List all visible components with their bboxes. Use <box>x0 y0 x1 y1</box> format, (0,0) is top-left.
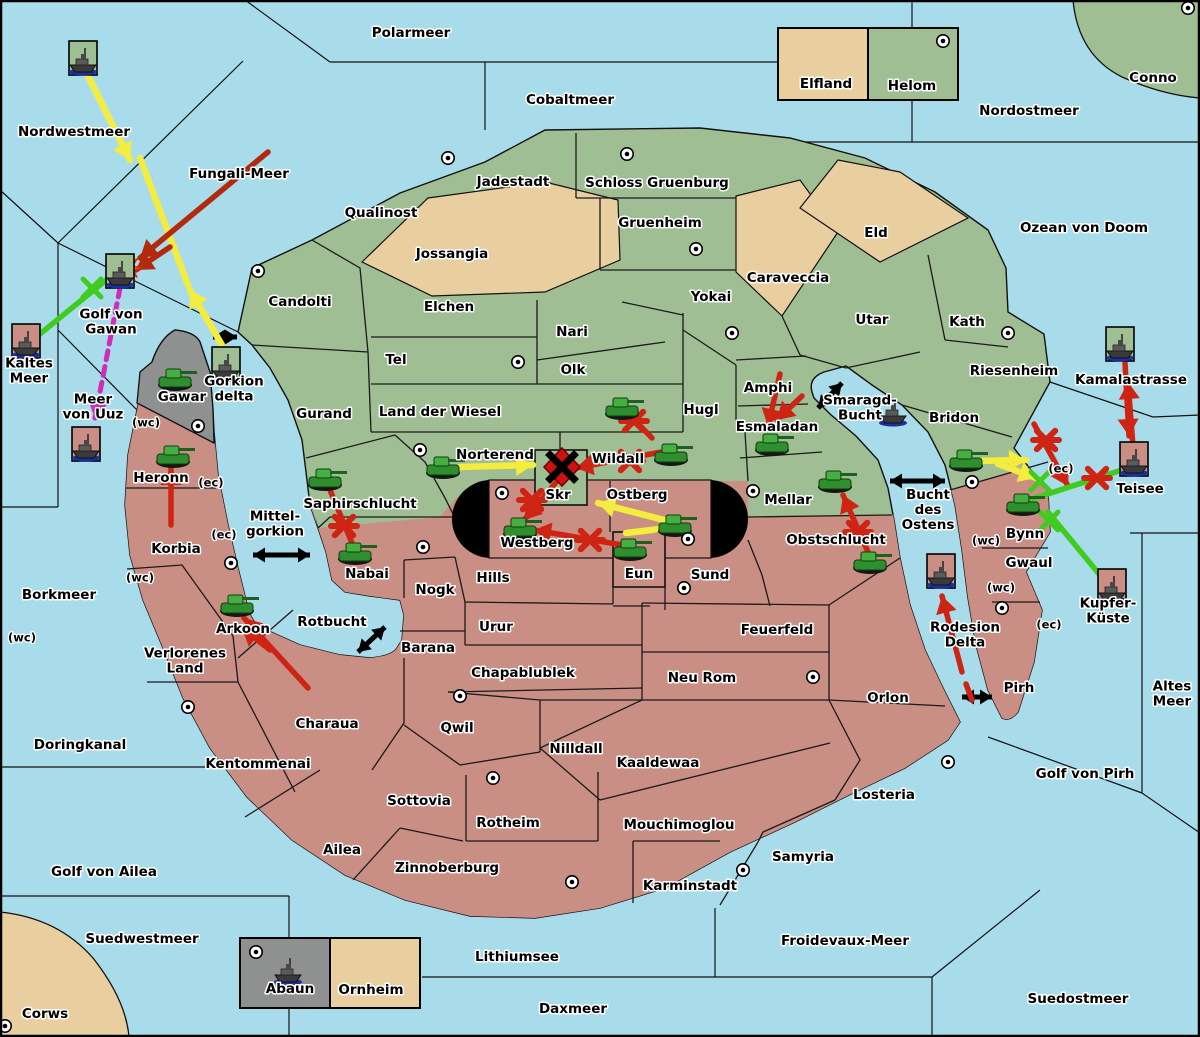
ship-deckhouse <box>934 572 946 578</box>
territory-label: Mouchimoglou <box>623 817 734 833</box>
coast-tag: (ec) <box>211 528 236 542</box>
supply-center-dot <box>250 946 262 958</box>
territory-label: Arkoon <box>216 621 270 637</box>
dot-core <box>751 489 756 494</box>
territory-label: Samyria <box>772 849 834 865</box>
supply-center-dot <box>807 671 819 683</box>
ship-bridge <box>224 360 229 365</box>
tank-turret <box>826 471 841 480</box>
sea-label: Delta <box>945 635 986 651</box>
sea-label: Kamalastrasse <box>1075 372 1187 388</box>
clash-marker-icon <box>544 448 580 486</box>
territory-label: Chapablublek <box>471 665 576 681</box>
tank-barrel <box>777 436 794 439</box>
tank-barrel <box>360 545 377 548</box>
territory-label: Obstschlucht <box>786 532 886 548</box>
supply-center-dot <box>225 557 237 569</box>
ship-deckhouse <box>1127 460 1139 466</box>
territory-label: Karminstadt <box>643 878 738 894</box>
supply-center-dot <box>937 35 949 47</box>
supply-center-dot <box>566 876 578 888</box>
tank-turret <box>1014 494 1029 503</box>
tank-barrel <box>680 517 697 520</box>
ship-hull <box>73 451 99 458</box>
tank-barrel <box>676 446 693 449</box>
coast-tag: (wc) <box>8 631 36 645</box>
supply-center-dot <box>182 701 194 713</box>
sea-label: Smaragd- <box>823 393 897 409</box>
territory-label: Korbia <box>151 541 201 557</box>
tank-turret <box>434 457 449 466</box>
territory-label: Kaaldewaa <box>617 755 700 771</box>
dot-core <box>1006 331 1011 336</box>
coast-tag: (wc) <box>126 571 154 585</box>
dot-core <box>421 545 426 550</box>
sea-label: Gawan <box>85 322 136 338</box>
dot-core <box>256 269 261 274</box>
sea-label: Kaltes <box>5 356 53 372</box>
territory-label: Westberg <box>500 535 573 551</box>
territory-label: Sund <box>691 567 730 583</box>
territory-label: Corws <box>22 1006 68 1022</box>
ship-hull <box>1121 466 1147 473</box>
territory-label: Kath <box>949 314 985 330</box>
territory-label: Nabai <box>345 566 389 582</box>
ship-bridge <box>286 964 291 969</box>
ship-hull <box>70 65 96 72</box>
territory-label: Gruenheim <box>618 215 702 231</box>
tank-barrel <box>178 448 195 451</box>
sea-label: delta <box>214 389 253 405</box>
sea-label: Fungali-Meer <box>189 166 289 182</box>
territory-label: Caraveccia <box>747 270 829 286</box>
sea-label: Rotbucht <box>297 614 367 630</box>
supply-center-dot <box>726 327 738 339</box>
coast-tag: (wc) <box>132 416 160 430</box>
supply-center-dot <box>414 444 426 456</box>
tank-turret <box>346 543 361 552</box>
territory-label: Tel <box>385 352 406 368</box>
tank-turret <box>763 434 778 443</box>
supply-center-dot <box>417 541 429 553</box>
coast-tag: (ec) <box>198 476 223 490</box>
sea-label: Suedwestmeer <box>85 931 199 947</box>
dot-core <box>458 694 463 699</box>
territory-label: Gawar <box>158 389 207 405</box>
territory-label: Olk <box>560 362 586 378</box>
sea-label: Teisee <box>1116 481 1164 497</box>
territory-label: Jossangia <box>415 246 489 262</box>
ship-bridge <box>1118 340 1123 345</box>
dot-core <box>625 152 630 157</box>
supply-center-dot <box>737 864 749 876</box>
sea-label: gorkion <box>246 524 304 540</box>
ship-bridge <box>24 337 29 342</box>
territory-label: Neu Rom <box>668 670 737 686</box>
ship-deckhouse <box>79 445 91 451</box>
sea-label: Golf von Pirh <box>1036 766 1135 782</box>
sea-label: des <box>915 502 942 518</box>
supply-center-dot <box>678 582 690 594</box>
map-canvas[interactable]: PolarmeerCobaltmeerNordostmeerOzean von … <box>0 0 1200 1037</box>
sea-label: Rodesion <box>930 620 1000 636</box>
ship-hull <box>880 416 906 423</box>
tank-barrel <box>1028 496 1045 499</box>
ship-deckhouse <box>1113 345 1125 351</box>
territory-label: Skr <box>545 487 571 503</box>
territory-label: Schloss Gruenburg <box>585 175 729 191</box>
tank-barrel <box>635 541 652 544</box>
sea-label: Ozean von Doom <box>1020 220 1148 236</box>
ship-bridge <box>1132 455 1137 460</box>
supply-center-dot <box>1182 2 1194 14</box>
territory-label: Qualinost <box>345 205 418 221</box>
sea-label: Nordwestmeer <box>18 124 130 140</box>
ship-bridge <box>939 567 944 572</box>
coast-tag: (ec) <box>1048 462 1073 476</box>
dot-core <box>516 360 521 365</box>
supply-center-dot <box>192 420 204 432</box>
territory-label: Losteria <box>853 787 915 803</box>
supply-center-dot <box>252 265 264 277</box>
tank-turret <box>861 552 876 561</box>
sea-label: Borkmeer <box>22 587 97 603</box>
territory-label: Mellar <box>764 492 812 508</box>
territory-label: Candolti <box>268 294 331 310</box>
sea-label: Froidevaux-Meer <box>781 933 909 949</box>
sea-label: Meer <box>74 392 113 408</box>
dot-core <box>941 39 946 44</box>
tank-turret <box>666 515 681 524</box>
territory-label: Urur <box>479 619 513 635</box>
territory-label: Heronn <box>133 470 189 486</box>
dot-core <box>741 868 746 873</box>
sea-label: von Uuz <box>63 407 124 423</box>
territory-label: Esmaladan <box>736 419 819 435</box>
ship-deckhouse <box>19 342 31 348</box>
dot-core <box>491 776 496 781</box>
ship-hull <box>1107 351 1133 358</box>
tank-barrel <box>525 520 542 523</box>
sea-label: Doringkanal <box>34 737 126 753</box>
sea-label: Nordostmeer <box>979 103 1079 119</box>
sea-label: Mittel- <box>250 509 300 525</box>
territory-label: Ostberg <box>606 487 667 503</box>
territory-label: Saphirschlucht <box>303 496 417 512</box>
ship-deckhouse <box>886 410 898 416</box>
dot-core <box>254 950 259 955</box>
coast-tag: (wc) <box>987 581 1015 595</box>
territory-label: Feuerfeld <box>741 622 814 638</box>
dot-core <box>1000 606 1005 611</box>
sea-label: Ostens <box>902 517 955 533</box>
sea-label: Gorkion <box>204 374 264 390</box>
tank-barrel <box>875 554 892 557</box>
dot-core <box>186 705 191 710</box>
sea-label: Meer <box>10 371 49 387</box>
dot-core <box>686 537 691 542</box>
territory-label: Land der Wiesel <box>379 404 501 420</box>
territory-label: Charaua <box>295 716 358 732</box>
ship-hull <box>13 348 39 355</box>
supply-center-dot <box>682 533 694 545</box>
supply-center-dot <box>942 756 954 768</box>
territory-label: Qwil <box>440 720 473 736</box>
territory-label: Abaun <box>266 981 314 997</box>
sea-label: Meer <box>1153 694 1192 710</box>
coast-tag: (ec) <box>1036 618 1061 632</box>
territory-label: Bynn <box>1006 526 1044 542</box>
territory-label: Rotheim <box>476 815 540 831</box>
sea-label: Cobaltmeer <box>526 92 614 108</box>
ship-bridge <box>118 267 123 272</box>
territory-label: Nilldall <box>549 741 602 757</box>
territory-label: Wildall <box>592 451 644 467</box>
tank-barrel <box>627 400 644 403</box>
dot-core <box>3 1024 8 1029</box>
tank-turret <box>662 444 677 453</box>
dot-core <box>970 480 975 485</box>
supply-center-dot <box>996 602 1008 614</box>
territory-label: Gwaul <box>1006 555 1053 571</box>
territory-label: Eun <box>625 566 653 582</box>
ship-deckhouse <box>113 272 125 278</box>
dot-core <box>682 586 687 591</box>
territory-label: Riesenheim <box>970 363 1058 379</box>
sea-label: Polarmeer <box>372 25 451 41</box>
territory-label: Nari <box>556 324 588 340</box>
territory-label: Gurand <box>296 406 352 422</box>
territory-label: Helom <box>888 78 936 94</box>
supply-center-dot <box>496 487 508 499</box>
territory-label: Zinnoberburg <box>395 860 499 876</box>
supply-center-dot <box>512 356 524 368</box>
tank-turret <box>613 398 628 407</box>
supply-center-dot <box>621 148 633 160</box>
supply-center-dot <box>966 476 978 488</box>
tank-turret <box>164 446 179 455</box>
supply-center-dot <box>442 152 454 164</box>
sea-label: Bucht <box>838 408 883 424</box>
tank-barrel <box>971 452 988 455</box>
territory-label: Elfland <box>800 76 852 92</box>
territory-label: Barana <box>401 640 455 656</box>
dot-core <box>500 491 505 496</box>
territory-label: Nogk <box>415 582 455 598</box>
territory-label: Elchen <box>424 299 474 315</box>
dot-core <box>570 880 575 885</box>
sea-label: Golf von <box>79 307 142 323</box>
territory-label: Ornheim <box>338 982 403 998</box>
sea-label: Bucht <box>906 487 951 503</box>
dot-core <box>196 424 201 429</box>
territory-label: Conno <box>1129 70 1177 86</box>
ship-bridge <box>81 54 86 59</box>
tank-turret <box>621 539 636 548</box>
dot-core <box>730 331 735 336</box>
territory-label: Pirh <box>1004 680 1035 696</box>
territory-label: Hills <box>476 570 509 586</box>
sea-label: Lithiumsee <box>475 949 559 965</box>
sea-label: Altes <box>1153 679 1192 695</box>
ship-hull <box>928 578 954 585</box>
territory-label: Kentommenai <box>205 756 310 772</box>
dot-core <box>694 247 699 252</box>
tank-turret <box>957 450 972 459</box>
territory-label: Sottovia <box>387 793 451 809</box>
sea-label: Daxmeer <box>539 1001 607 1017</box>
territory-label: Verlorenes <box>144 646 226 662</box>
tank-barrel <box>330 471 347 474</box>
tank-barrel <box>242 597 259 600</box>
territory-label: Jadestadt <box>476 174 550 190</box>
ship-deckhouse <box>281 969 293 975</box>
dot-core <box>418 448 423 453</box>
territory-label: Land <box>167 661 204 677</box>
supply-center-dot <box>487 772 499 784</box>
supply-center-dot <box>454 690 466 702</box>
dot-core <box>446 156 451 161</box>
supply-center-dot <box>1002 327 1014 339</box>
ship-bridge <box>1110 582 1115 587</box>
territory-label: Hugl <box>683 402 718 418</box>
tank-barrel <box>180 371 197 374</box>
ship-deckhouse <box>1105 587 1117 593</box>
ship-hull <box>107 278 133 285</box>
territory-label: Bridon <box>929 410 979 426</box>
ship-bridge <box>84 440 89 445</box>
ship-deckhouse <box>219 365 231 371</box>
supply-center-dot <box>747 485 759 497</box>
tank-turret <box>228 595 243 604</box>
sea-label: Suedostmeer <box>1028 991 1129 1007</box>
tank-turret <box>316 469 331 478</box>
sea-label: Golf von Ailea <box>51 864 157 880</box>
dot-core <box>946 760 951 765</box>
tank-turret <box>166 369 181 378</box>
supply-center-dot <box>690 243 702 255</box>
dot-core <box>229 561 234 566</box>
coast-tag: (wc) <box>972 534 1000 548</box>
ship-deckhouse <box>76 59 88 65</box>
territory-label: Eld <box>864 225 888 241</box>
dot-core <box>1186 6 1191 11</box>
game-map[interactable]: PolarmeerCobaltmeerNordostmeerOzean von … <box>0 0 1200 1037</box>
territory-label: Amphi <box>744 380 792 396</box>
territory-label: Orlon <box>867 690 909 706</box>
sea-label: Kupfer- <box>1080 596 1137 612</box>
dot-core <box>811 675 816 680</box>
territory-label: Utar <box>855 312 889 328</box>
tank-barrel <box>840 473 857 476</box>
sea-label: Küste <box>1086 611 1129 627</box>
territory-label: Norterend <box>456 447 534 463</box>
territory-label: Ailea <box>323 842 361 858</box>
tank-turret <box>511 518 526 527</box>
territory-label: Yokai <box>690 289 732 305</box>
